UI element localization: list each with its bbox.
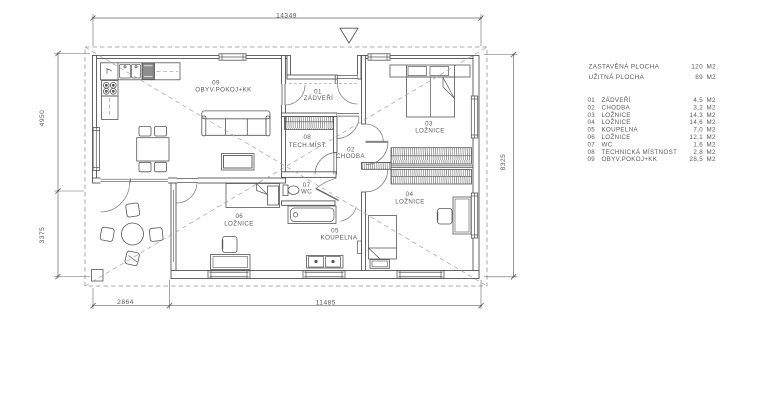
svg-text:14,3: 14,3: [690, 112, 704, 119]
svg-text:02: 02: [588, 104, 596, 111]
svg-text:3375: 3375: [39, 227, 46, 244]
svg-text:TECH.MÍST.: TECH.MÍST.: [289, 142, 327, 149]
svg-text:28,5: 28,5: [690, 156, 704, 163]
svg-text:CHODBA: CHODBA: [602, 104, 631, 111]
svg-text:M2: M2: [707, 119, 717, 126]
svg-text:OBYV.POKOJ+KK: OBYV.POKOJ+KK: [602, 156, 658, 163]
svg-text:11485: 11485: [316, 299, 336, 306]
svg-text:1,6: 1,6: [693, 141, 703, 148]
svg-text:ZASTAVĚNÁ PLOCHA: ZASTAVĚNÁ PLOCHA: [589, 62, 660, 71]
svg-text:4950: 4950: [39, 110, 46, 127]
svg-text:12,1: 12,1: [690, 134, 704, 141]
svg-text:07: 07: [588, 141, 596, 148]
svg-text:M2: M2: [707, 104, 717, 111]
svg-text:06: 06: [588, 134, 596, 141]
svg-text:M2: M2: [707, 141, 717, 148]
svg-text:M2: M2: [707, 64, 717, 71]
svg-text:14349: 14349: [276, 12, 297, 19]
svg-text:M2: M2: [707, 156, 717, 163]
svg-text:ZÁDVEŘÍ: ZÁDVEŘÍ: [304, 94, 334, 102]
svg-text:CHODBA: CHODBA: [336, 153, 365, 160]
svg-text:ZÁDVEŘÍ: ZÁDVEŘÍ: [602, 96, 631, 104]
svg-text:09: 09: [588, 156, 596, 163]
svg-text:01: 01: [588, 97, 596, 104]
svg-text:3,2: 3,2: [693, 104, 703, 111]
svg-text:03: 03: [588, 112, 596, 119]
svg-text:14,6: 14,6: [690, 119, 704, 126]
svg-text:09: 09: [212, 80, 220, 87]
svg-text:M2: M2: [707, 134, 717, 141]
svg-text:08: 08: [303, 134, 311, 141]
svg-text:LOŽNICE: LOŽNICE: [415, 127, 445, 135]
svg-text:UŽITNÁ PLOCHA: UŽITNÁ PLOCHA: [589, 72, 645, 81]
svg-text:LOŽNICE: LOŽNICE: [395, 198, 425, 206]
svg-text:M2: M2: [707, 149, 717, 156]
svg-text:04: 04: [588, 119, 596, 126]
svg-text:TECHNICKÁ MÍSTNOST: TECHNICKÁ MÍSTNOST: [602, 149, 678, 156]
svg-text:M2: M2: [707, 74, 717, 81]
svg-text:M2: M2: [707, 127, 717, 134]
svg-text:04: 04: [406, 191, 414, 198]
svg-text:8325: 8325: [500, 154, 507, 171]
svg-text:05: 05: [331, 227, 339, 234]
svg-text:LOŽNICE: LOŽNICE: [602, 133, 631, 141]
svg-text:LOŽNICE: LOŽNICE: [602, 118, 631, 126]
svg-text:OBYV.POKOJ+KK: OBYV.POKOJ+KK: [195, 87, 252, 94]
svg-text:KOUPELNA: KOUPELNA: [602, 127, 639, 134]
svg-text:89: 89: [695, 74, 703, 81]
svg-text:KOUPELNA: KOUPELNA: [321, 235, 358, 242]
svg-text:2864: 2864: [117, 299, 134, 306]
svg-text:M2: M2: [707, 97, 717, 104]
svg-text:05: 05: [588, 127, 596, 134]
svg-text:08: 08: [588, 149, 596, 156]
svg-text:06: 06: [235, 213, 243, 220]
svg-text:120: 120: [691, 64, 703, 71]
svg-text:LOŽNICE: LOŽNICE: [602, 111, 631, 119]
svg-text:M2: M2: [707, 112, 717, 119]
svg-text:2,8: 2,8: [693, 149, 703, 156]
svg-text:WC: WC: [602, 141, 613, 148]
svg-text:7,0: 7,0: [693, 127, 703, 134]
svg-text:LOŽNICE: LOŽNICE: [224, 219, 254, 227]
svg-text:WC: WC: [301, 188, 312, 195]
svg-text:4,5: 4,5: [693, 97, 703, 104]
svg-text:03: 03: [425, 121, 433, 128]
